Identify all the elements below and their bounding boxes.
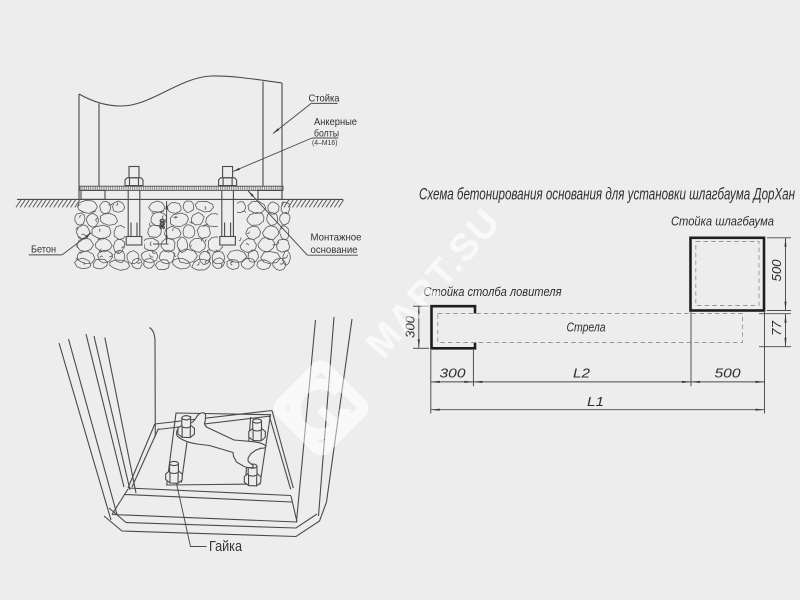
svg-text:Стойка: Стойка	[309, 92, 340, 104]
svg-text:Схема бетонирования основания: Схема бетонирования основания для устано…	[419, 185, 795, 204]
svg-text:Монтажное: Монтажное	[311, 231, 362, 243]
svg-text:300: 300	[440, 366, 467, 381]
svg-text:77: 77	[769, 320, 784, 336]
svg-text:Стойка шлагбаума: Стойка шлагбаума	[671, 215, 774, 229]
svg-text:Анкерные: Анкерные	[314, 116, 357, 128]
svg-text:(4–М16): (4–М16)	[312, 138, 338, 147]
svg-text:Бетон: Бетон	[31, 243, 56, 255]
svg-text:основание: основание	[311, 244, 358, 256]
svg-text:500: 500	[715, 366, 742, 381]
svg-text:500: 500	[769, 259, 784, 282]
svg-text:Стрела: Стрела	[567, 320, 606, 335]
svg-text:L1: L1	[587, 394, 604, 409]
svg-text:L2: L2	[573, 366, 591, 381]
svg-text:300: 300	[161, 218, 167, 229]
svg-text:Гайка: Гайка	[209, 539, 243, 555]
